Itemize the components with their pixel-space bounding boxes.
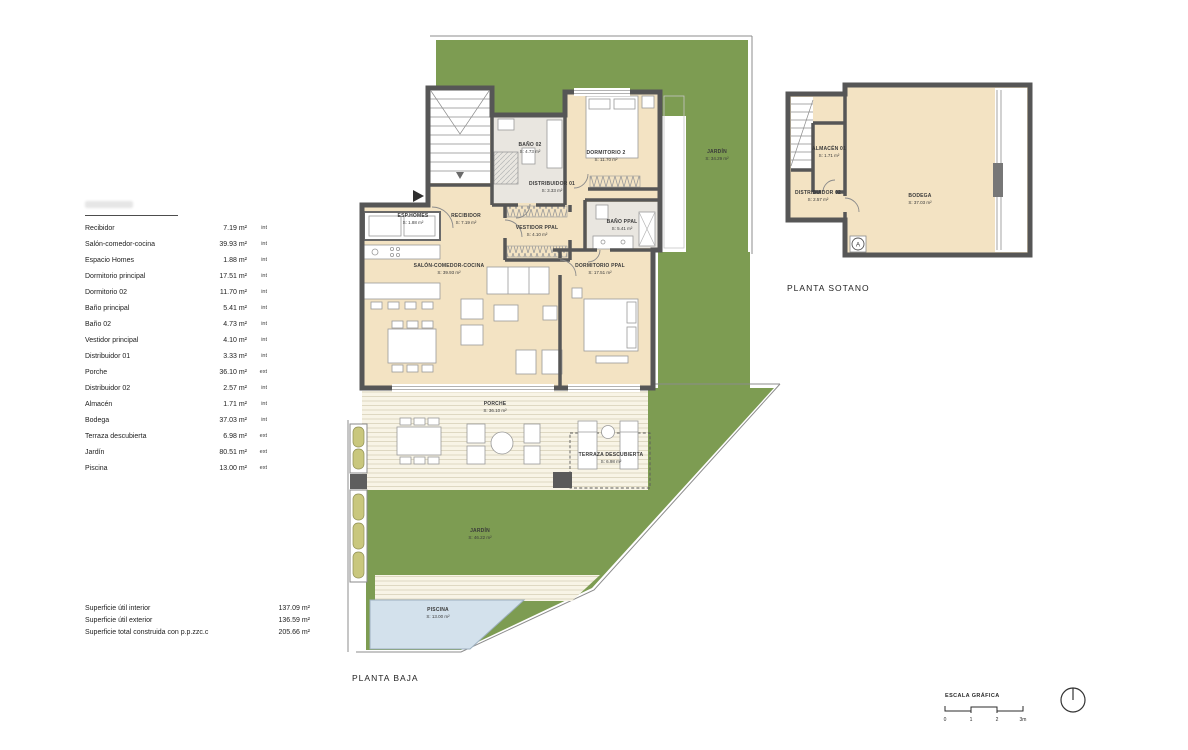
outdoor-chair (524, 446, 540, 464)
svg-text:BODEGA: BODEGA (908, 193, 931, 199)
outdoor-table (397, 427, 441, 455)
vestidor-closet (507, 206, 567, 217)
svg-text:VESTIDOR PPAL: VESTIDOR PPAL (516, 225, 559, 231)
outdoor-chair (524, 424, 540, 443)
svg-text:S: 1.71 m²: S: 1.71 m² (819, 153, 840, 158)
round-table (491, 432, 513, 454)
svg-text:BAÑO PPAL: BAÑO PPAL (607, 218, 638, 225)
svg-text:JARDÍN: JARDÍN (470, 526, 490, 534)
north-compass-icon (1061, 688, 1085, 712)
coffee-table (494, 305, 518, 321)
svg-text:3m: 3m (1020, 717, 1027, 723)
svg-text:DORMITORIO 2: DORMITORIO 2 (587, 150, 626, 156)
armchair (516, 350, 536, 374)
svg-text:S: 37.03 m²: S: 37.03 m² (908, 200, 932, 205)
svg-text:JARDÍN: JARDÍN (707, 147, 727, 155)
planters (350, 424, 367, 582)
patio-outline (664, 96, 684, 248)
bench (596, 356, 628, 363)
dorm2-closet (590, 176, 640, 187)
armchair (461, 325, 483, 345)
sofa (487, 267, 549, 294)
toilet (596, 205, 608, 219)
svg-text:DORMITORIO PPAL: DORMITORIO PPAL (575, 263, 625, 269)
sun-lounger (620, 421, 638, 469)
svg-text:1: 1 (970, 717, 973, 723)
svg-text:S: 4.73 m²: S: 4.73 m² (520, 149, 541, 154)
svg-text:PORCHE: PORCHE (484, 401, 507, 407)
svg-text:DISTRIBUIDOR 02: DISTRIBUIDOR 02 (795, 190, 841, 196)
svg-text:A: A (856, 242, 861, 249)
svg-text:S: 46.22 m²: S: 46.22 m² (468, 535, 492, 540)
section-marker-a: A (850, 236, 866, 252)
bathtub (547, 120, 562, 168)
sink (498, 119, 514, 130)
mullion (993, 163, 1003, 197)
ground-plan: BAÑO 02 S: 4.73 m² DORMITORIO 2 S: 11.70… (348, 36, 780, 652)
svg-text:2: 2 (996, 717, 999, 723)
shower (494, 152, 518, 184)
svg-text:S: 13.00 m²: S: 13.00 m² (426, 614, 450, 619)
floor-plan-sheet: Recibidor7.19 m²int Salón-comedor-cocina… (0, 0, 1188, 750)
entrance-arrow (413, 190, 424, 202)
svg-text:S: 6.98 m²: S: 6.98 m² (601, 459, 622, 464)
svg-text:S: 39.93 m²: S: 39.93 m² (437, 270, 461, 275)
svg-text:ESP.HOMES: ESP.HOMES (398, 213, 429, 219)
kitchen-island (364, 283, 440, 299)
svg-text:S: 17.51 m²: S: 17.51 m² (588, 270, 612, 275)
scale-bar (945, 706, 1023, 713)
svg-text:0: 0 (944, 717, 947, 723)
pool-deck (375, 575, 600, 601)
outdoor-chair (467, 424, 485, 443)
svg-text:S: 4.10 m²: S: 4.10 m² (527, 232, 548, 237)
outdoor-chair (467, 446, 485, 464)
svg-text:BAÑO 02: BAÑO 02 (518, 141, 541, 148)
double-sink (593, 236, 633, 249)
svg-text:RECIBIDOR: RECIBIDOR (451, 213, 481, 219)
svg-text:S: 5.41 m²: S: 5.41 m² (612, 226, 633, 231)
scale-ticks: 0 1 2 3m (944, 717, 1027, 723)
svg-text:S: 7.19 m²: S: 7.19 m² (456, 220, 477, 225)
nightstand (642, 96, 654, 108)
basement-plan: A ALMACÉN 01 S: 1.71 m² DISTRIBUIDOR 02 … (788, 85, 1030, 255)
svg-text:S: 3.33 m²: S: 3.33 m² (542, 188, 563, 193)
svg-text:S: 1.88 m²: S: 1.88 m² (403, 220, 424, 225)
svg-text:S: 11.70 m²: S: 11.70 m² (595, 157, 618, 162)
plan-canvas: BAÑO 02 S: 4.73 m² DORMITORIO 2 S: 11.70… (0, 0, 1188, 750)
armchair (461, 299, 483, 319)
svg-text:S: 36.10 m²: S: 36.10 m² (483, 408, 507, 413)
staircase (430, 90, 490, 183)
svg-text:S: 34.29 m²: S: 34.29 m² (705, 156, 729, 161)
svg-text:PISCINA: PISCINA (427, 607, 449, 613)
nightstand (572, 288, 582, 298)
svg-text:S: 2.57 m²: S: 2.57 m² (808, 197, 829, 202)
sun-lounger (578, 421, 597, 469)
svg-text:ALMACÉN 01: ALMACÉN 01 (812, 144, 846, 152)
dining-table (388, 329, 436, 363)
svg-text:TERRAZA DESCUBIERTA: TERRAZA DESCUBIERTA (579, 452, 644, 458)
svg-text:DISTRIBUIDOR 01: DISTRIBUIDOR 01 (529, 181, 575, 187)
side-table (602, 426, 615, 439)
porch-post (553, 472, 572, 488)
svg-text:SALÓN-COMEDOR-COCINA: SALÓN-COMEDOR-COCINA (414, 261, 485, 269)
